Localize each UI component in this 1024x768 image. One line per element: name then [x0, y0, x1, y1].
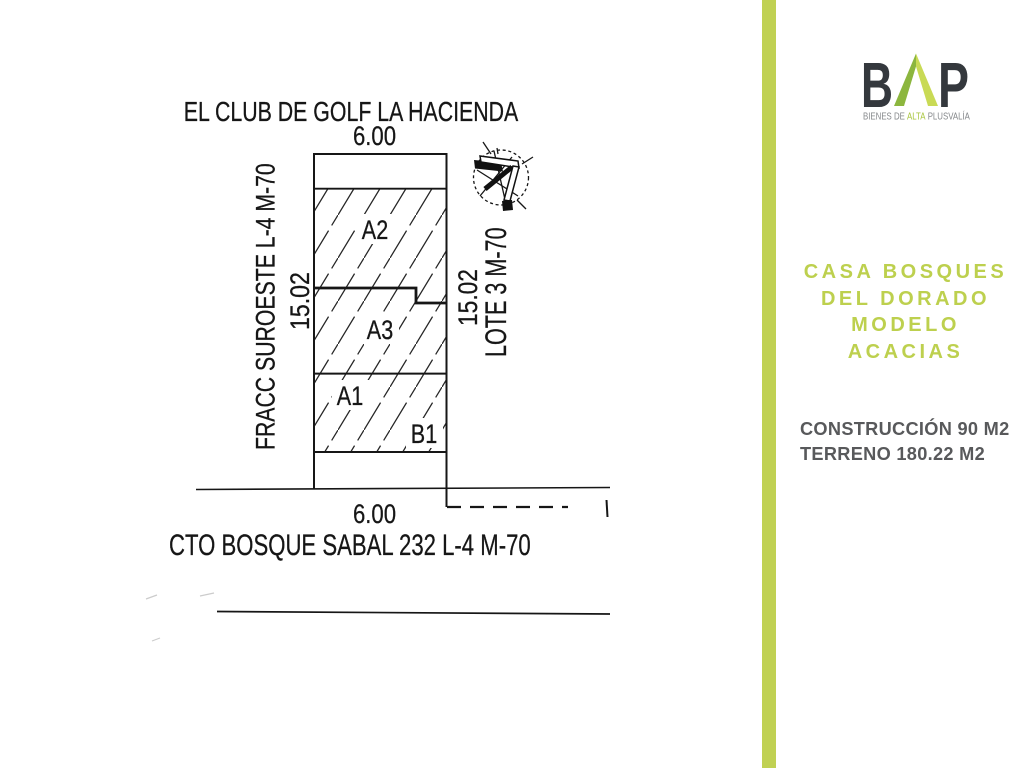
svg-text:6.00: 6.00	[353, 500, 396, 530]
svg-text:EL CLUB DE GOLF LA HACIENDA: EL CLUB DE GOLF LA HACIENDA	[184, 96, 519, 127]
svg-text:B1: B1	[411, 420, 437, 450]
svg-text:FRACC SUROESTE L-4 M-70: FRACC SUROESTE L-4 M-70	[251, 163, 281, 450]
svg-text:BIENES DE ALTA PLUSVALÍA: BIENES DE ALTA PLUSVALÍA	[863, 111, 971, 122]
svg-text:A2: A2	[362, 216, 388, 246]
svg-text:6.00: 6.00	[353, 122, 396, 152]
svg-text:15.02: 15.02	[285, 272, 315, 330]
svg-text:A1: A1	[337, 382, 363, 412]
svg-text:CTO BOSQUE SABAL 232 L-4 M-70: CTO BOSQUE SABAL 232 L-4 M-70	[169, 528, 531, 562]
svg-text:LOTE 3 M-70: LOTE 3 M-70	[478, 227, 512, 357]
svg-text:A3: A3	[367, 316, 393, 346]
